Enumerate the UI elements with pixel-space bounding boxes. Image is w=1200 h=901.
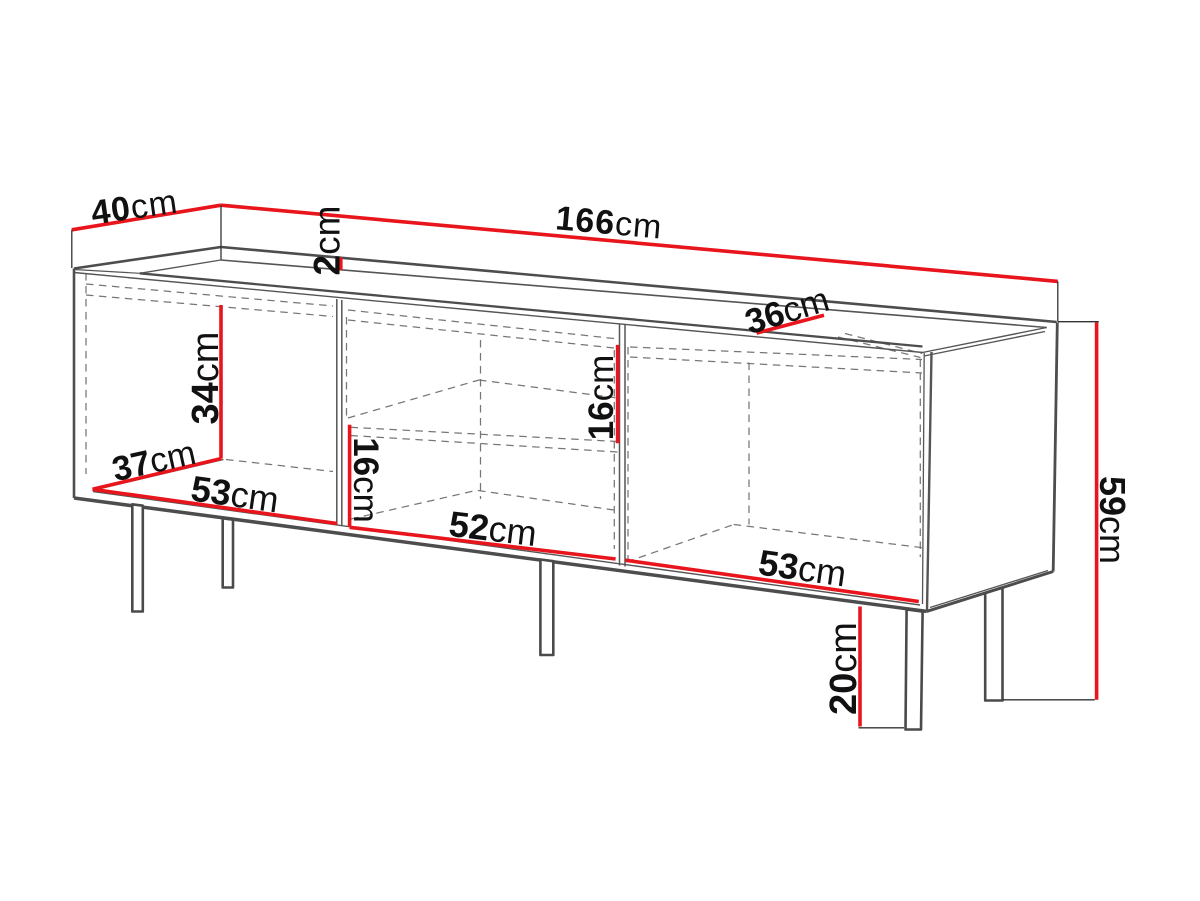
- svg-text:59cm: 59cm: [1093, 476, 1134, 564]
- svg-text:2cm: 2cm: [306, 206, 347, 276]
- svg-text:20cm: 20cm: [823, 622, 865, 715]
- svg-text:16cm: 16cm: [582, 355, 621, 441]
- svg-text:34cm: 34cm: [185, 332, 227, 425]
- svg-text:16cm: 16cm: [347, 437, 386, 523]
